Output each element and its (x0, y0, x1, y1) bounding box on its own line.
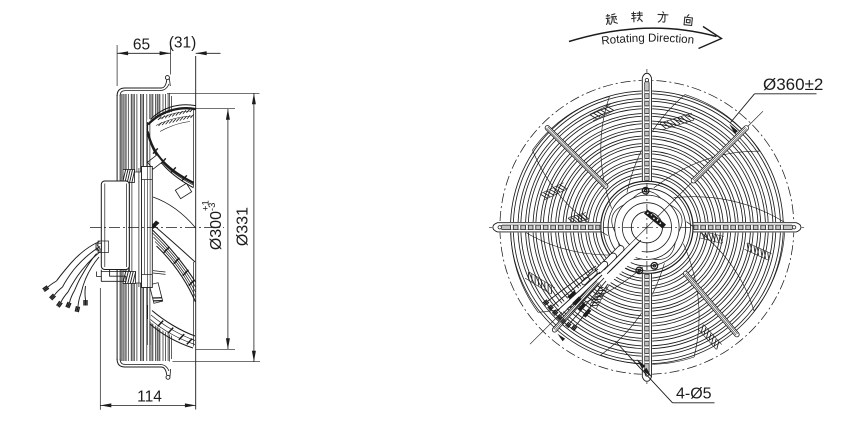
svg-text:114: 114 (137, 389, 162, 406)
svg-text:Ø360±2: Ø360±2 (763, 75, 823, 94)
svg-text:Ø300: Ø300 (208, 211, 225, 250)
svg-text:4-Ø5: 4-Ø5 (676, 386, 712, 403)
svg-text:Ø331: Ø331 (234, 207, 251, 246)
svg-text:(31): (31) (169, 35, 197, 52)
svg-text:-3: -3 (207, 203, 218, 211)
svg-text:65: 65 (133, 37, 150, 54)
